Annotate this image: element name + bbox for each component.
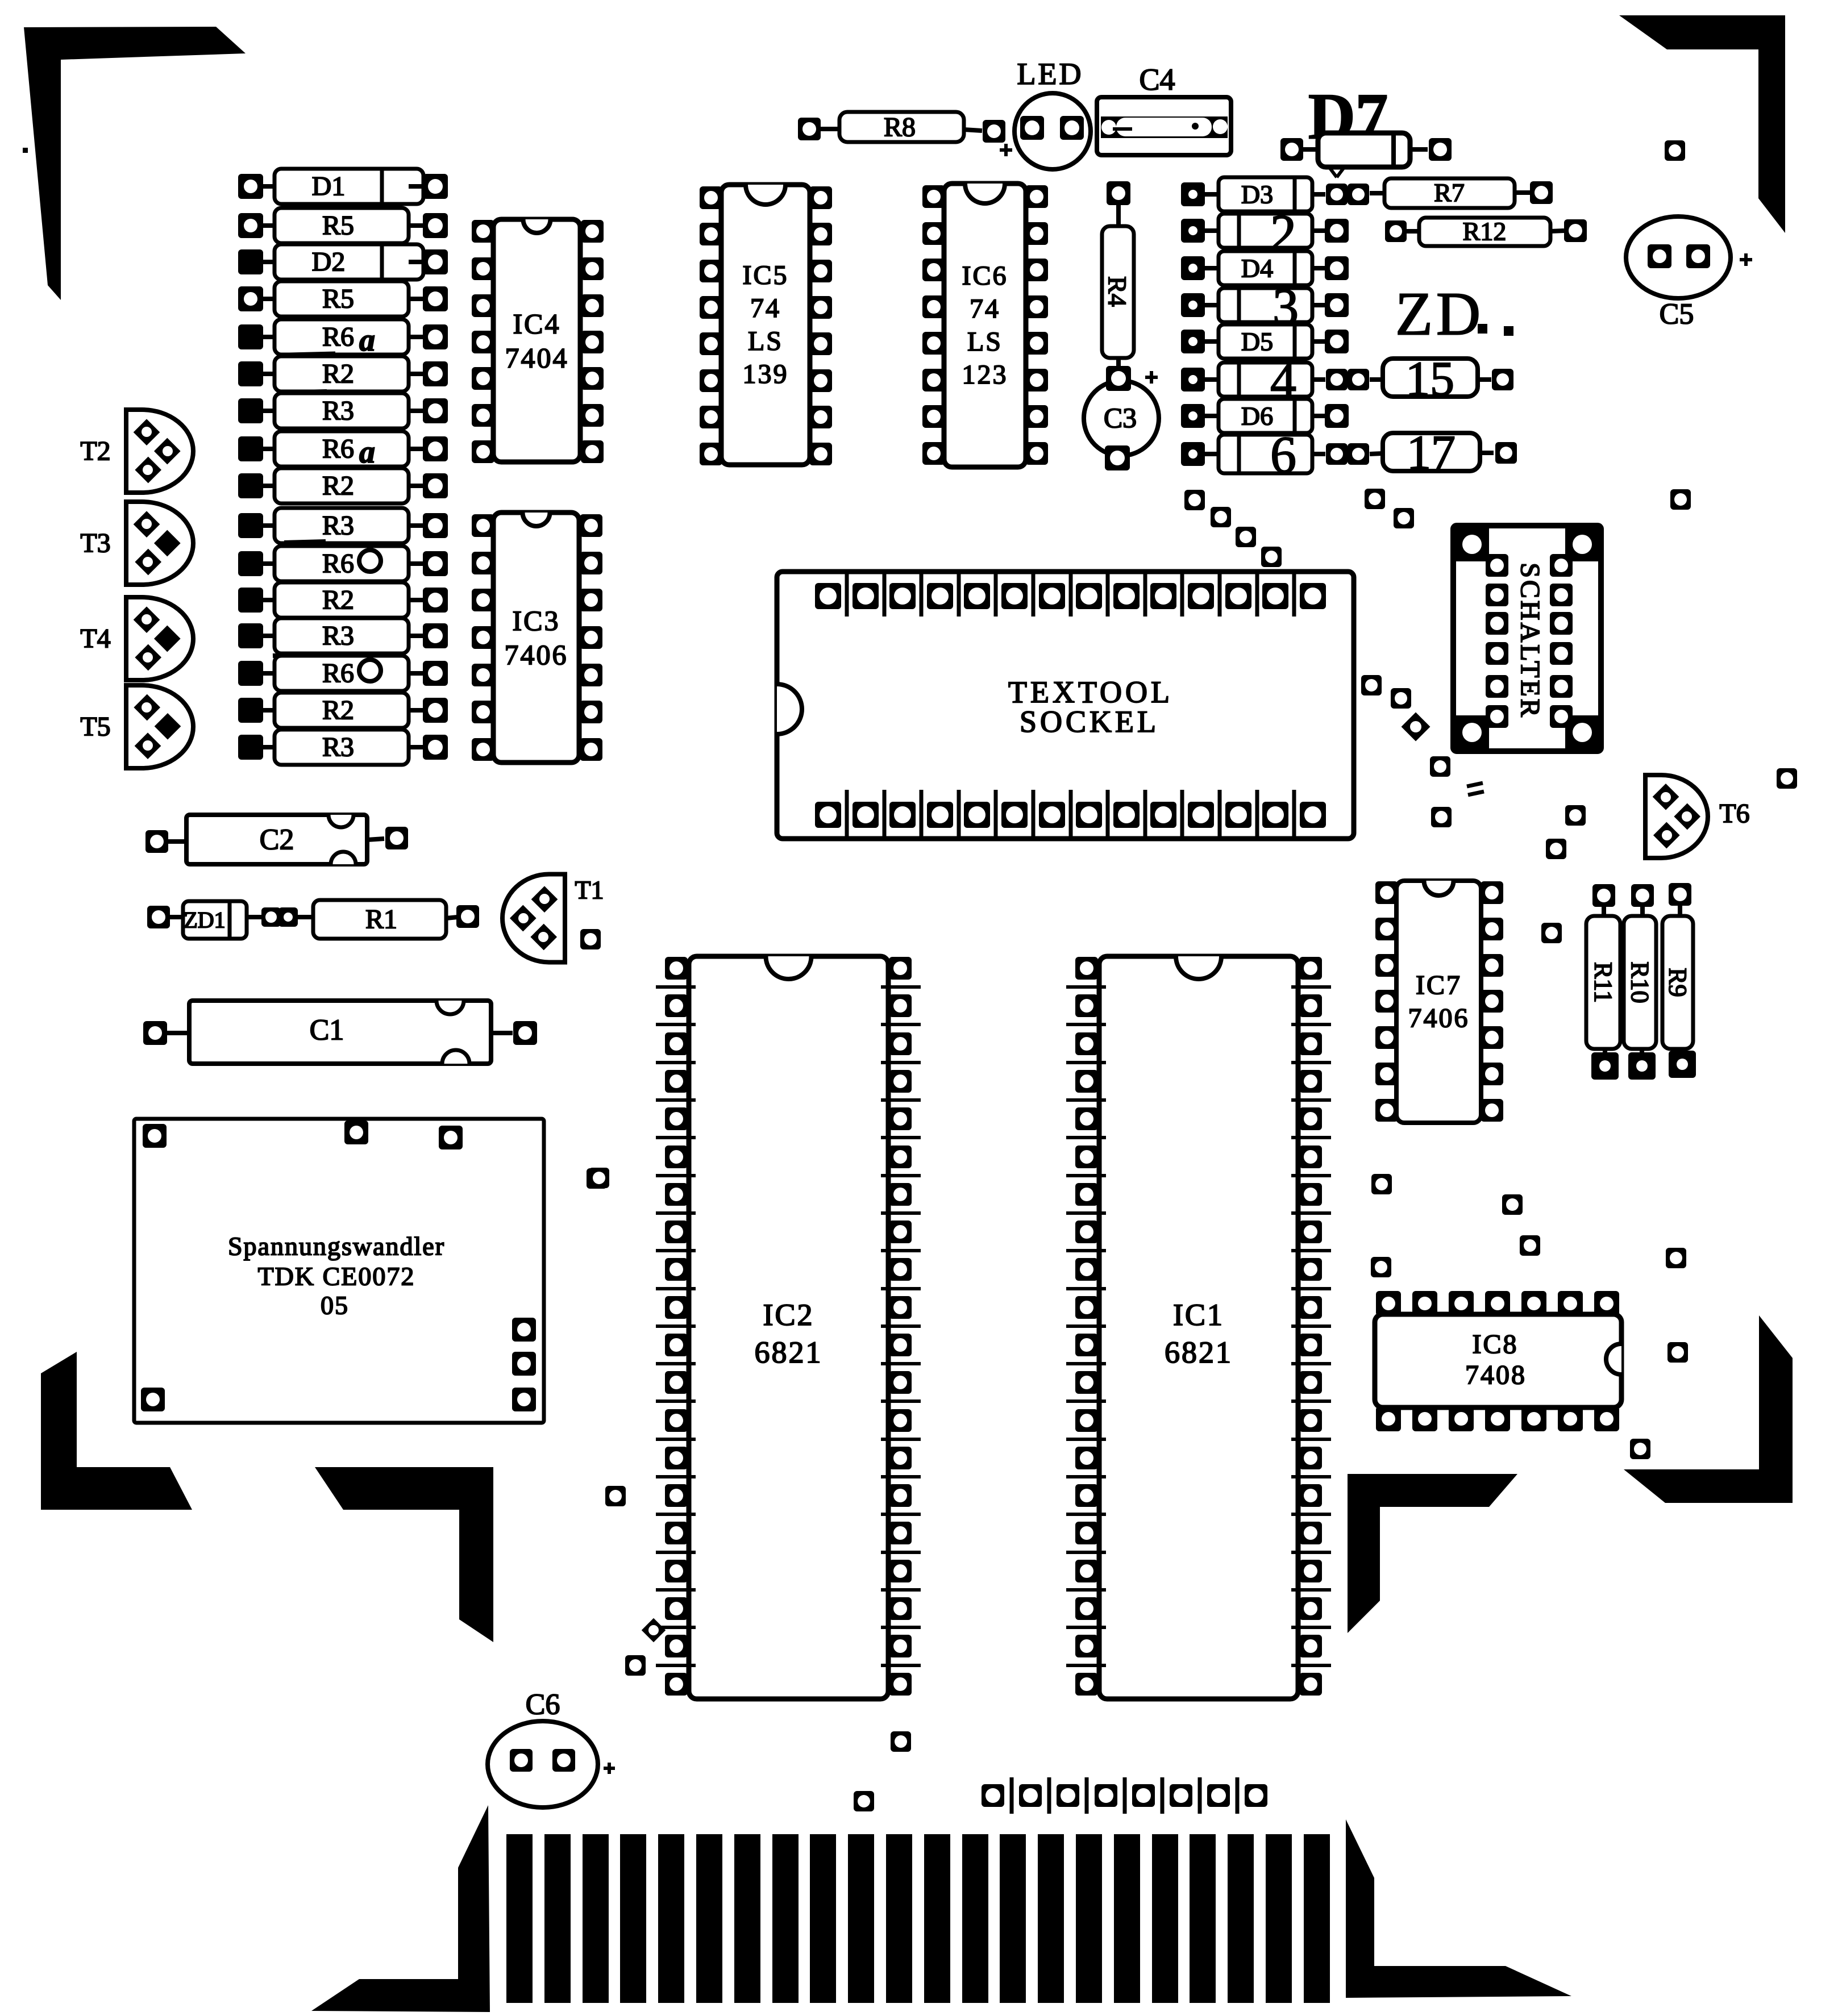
- svg-text:T2: T2: [80, 436, 110, 466]
- svg-text:ZD1: ZD1: [184, 907, 225, 933]
- svg-text:a: a: [359, 435, 375, 470]
- svg-text:D5: D5: [1241, 327, 1273, 356]
- svg-text:139: 139: [743, 359, 789, 389]
- svg-text:D4: D4: [1241, 254, 1273, 283]
- svg-text:123: 123: [962, 360, 1008, 390]
- svg-text:T5: T5: [80, 712, 110, 742]
- svg-text:IC6: IC6: [962, 261, 1008, 291]
- svg-text:SOCKEL: SOCKEL: [1020, 705, 1159, 739]
- svg-text:7406: 7406: [1408, 1003, 1470, 1034]
- svg-text:6821: 6821: [1165, 1335, 1233, 1369]
- svg-text:T1: T1: [575, 876, 604, 905]
- svg-text:R6: R6: [322, 434, 354, 464]
- svg-text:R3: R3: [322, 511, 354, 541]
- svg-text:IC1: IC1: [1173, 1298, 1224, 1332]
- svg-text:7408: 7408: [1465, 1360, 1527, 1390]
- svg-text:R9: R9: [1664, 968, 1692, 997]
- svg-text:ZD: ZD: [1395, 281, 1484, 348]
- svg-text:R2: R2: [322, 585, 354, 615]
- svg-text:R3: R3: [322, 732, 354, 763]
- svg-text:R8: R8: [884, 113, 916, 143]
- svg-text:6: 6: [1270, 426, 1296, 484]
- svg-text:LS: LS: [967, 327, 1003, 357]
- svg-text:7404: 7404: [505, 342, 569, 374]
- svg-text:LS: LS: [748, 326, 783, 356]
- svg-text:6821: 6821: [755, 1335, 823, 1369]
- svg-text:R5: R5: [322, 211, 354, 241]
- svg-text:C1: C1: [310, 1014, 344, 1047]
- svg-text:T4: T4: [80, 624, 110, 654]
- svg-text:SCHALTER: SCHALTER: [1515, 563, 1545, 719]
- svg-text:IC7: IC7: [1416, 970, 1462, 1001]
- svg-text:R6: R6: [322, 659, 354, 689]
- svg-text:R6: R6: [322, 549, 354, 579]
- svg-text:15: 15: [1405, 351, 1454, 406]
- svg-text:74: 74: [970, 294, 1000, 324]
- svg-text:R6: R6: [322, 322, 354, 352]
- svg-text:TDK CE0072: TDK CE0072: [258, 1262, 415, 1291]
- svg-text:R2: R2: [322, 695, 354, 726]
- svg-text:R5: R5: [322, 284, 354, 314]
- svg-text:TEXTOOL: TEXTOOL: [1008, 675, 1173, 709]
- svg-text:D2: D2: [312, 247, 346, 277]
- svg-text:T3: T3: [80, 528, 110, 559]
- svg-text:05: 05: [321, 1291, 349, 1320]
- svg-text:7406: 7406: [505, 639, 568, 670]
- svg-text:D6: D6: [1241, 402, 1273, 431]
- svg-text:IC3: IC3: [513, 605, 560, 636]
- svg-text:IC4: IC4: [513, 308, 561, 340]
- svg-text:R4: R4: [1103, 276, 1132, 307]
- svg-text:R10: R10: [1626, 961, 1654, 1003]
- svg-text:R1: R1: [365, 905, 397, 935]
- svg-text:IC2: IC2: [763, 1298, 814, 1332]
- svg-text:74: 74: [750, 293, 781, 323]
- svg-text:a: a: [359, 323, 375, 358]
- svg-text:R3: R3: [322, 621, 354, 651]
- svg-text:C2: C2: [260, 824, 294, 856]
- svg-text:R12: R12: [1463, 217, 1507, 246]
- svg-text:Spannungswandler: Spannungswandler: [228, 1232, 445, 1261]
- svg-text:R3: R3: [322, 396, 354, 426]
- svg-text:R2: R2: [322, 359, 354, 389]
- svg-text:IC5: IC5: [743, 260, 789, 290]
- svg-text:IC8: IC8: [1473, 1330, 1519, 1360]
- svg-text:C5: C5: [1660, 298, 1694, 331]
- svg-text:LED: LED: [1017, 57, 1084, 91]
- svg-text:D1: D1: [312, 172, 346, 202]
- svg-text:C3: C3: [1104, 402, 1137, 434]
- svg-text:R7: R7: [1434, 178, 1465, 207]
- svg-text:D3: D3: [1241, 180, 1273, 209]
- svg-text:C6: C6: [526, 1689, 560, 1721]
- svg-text:R2: R2: [322, 471, 354, 501]
- svg-text:R11: R11: [1590, 962, 1617, 1003]
- svg-text:17: 17: [1407, 425, 1456, 480]
- svg-text:T6: T6: [1719, 799, 1749, 829]
- svg-text:C4: C4: [1139, 63, 1175, 97]
